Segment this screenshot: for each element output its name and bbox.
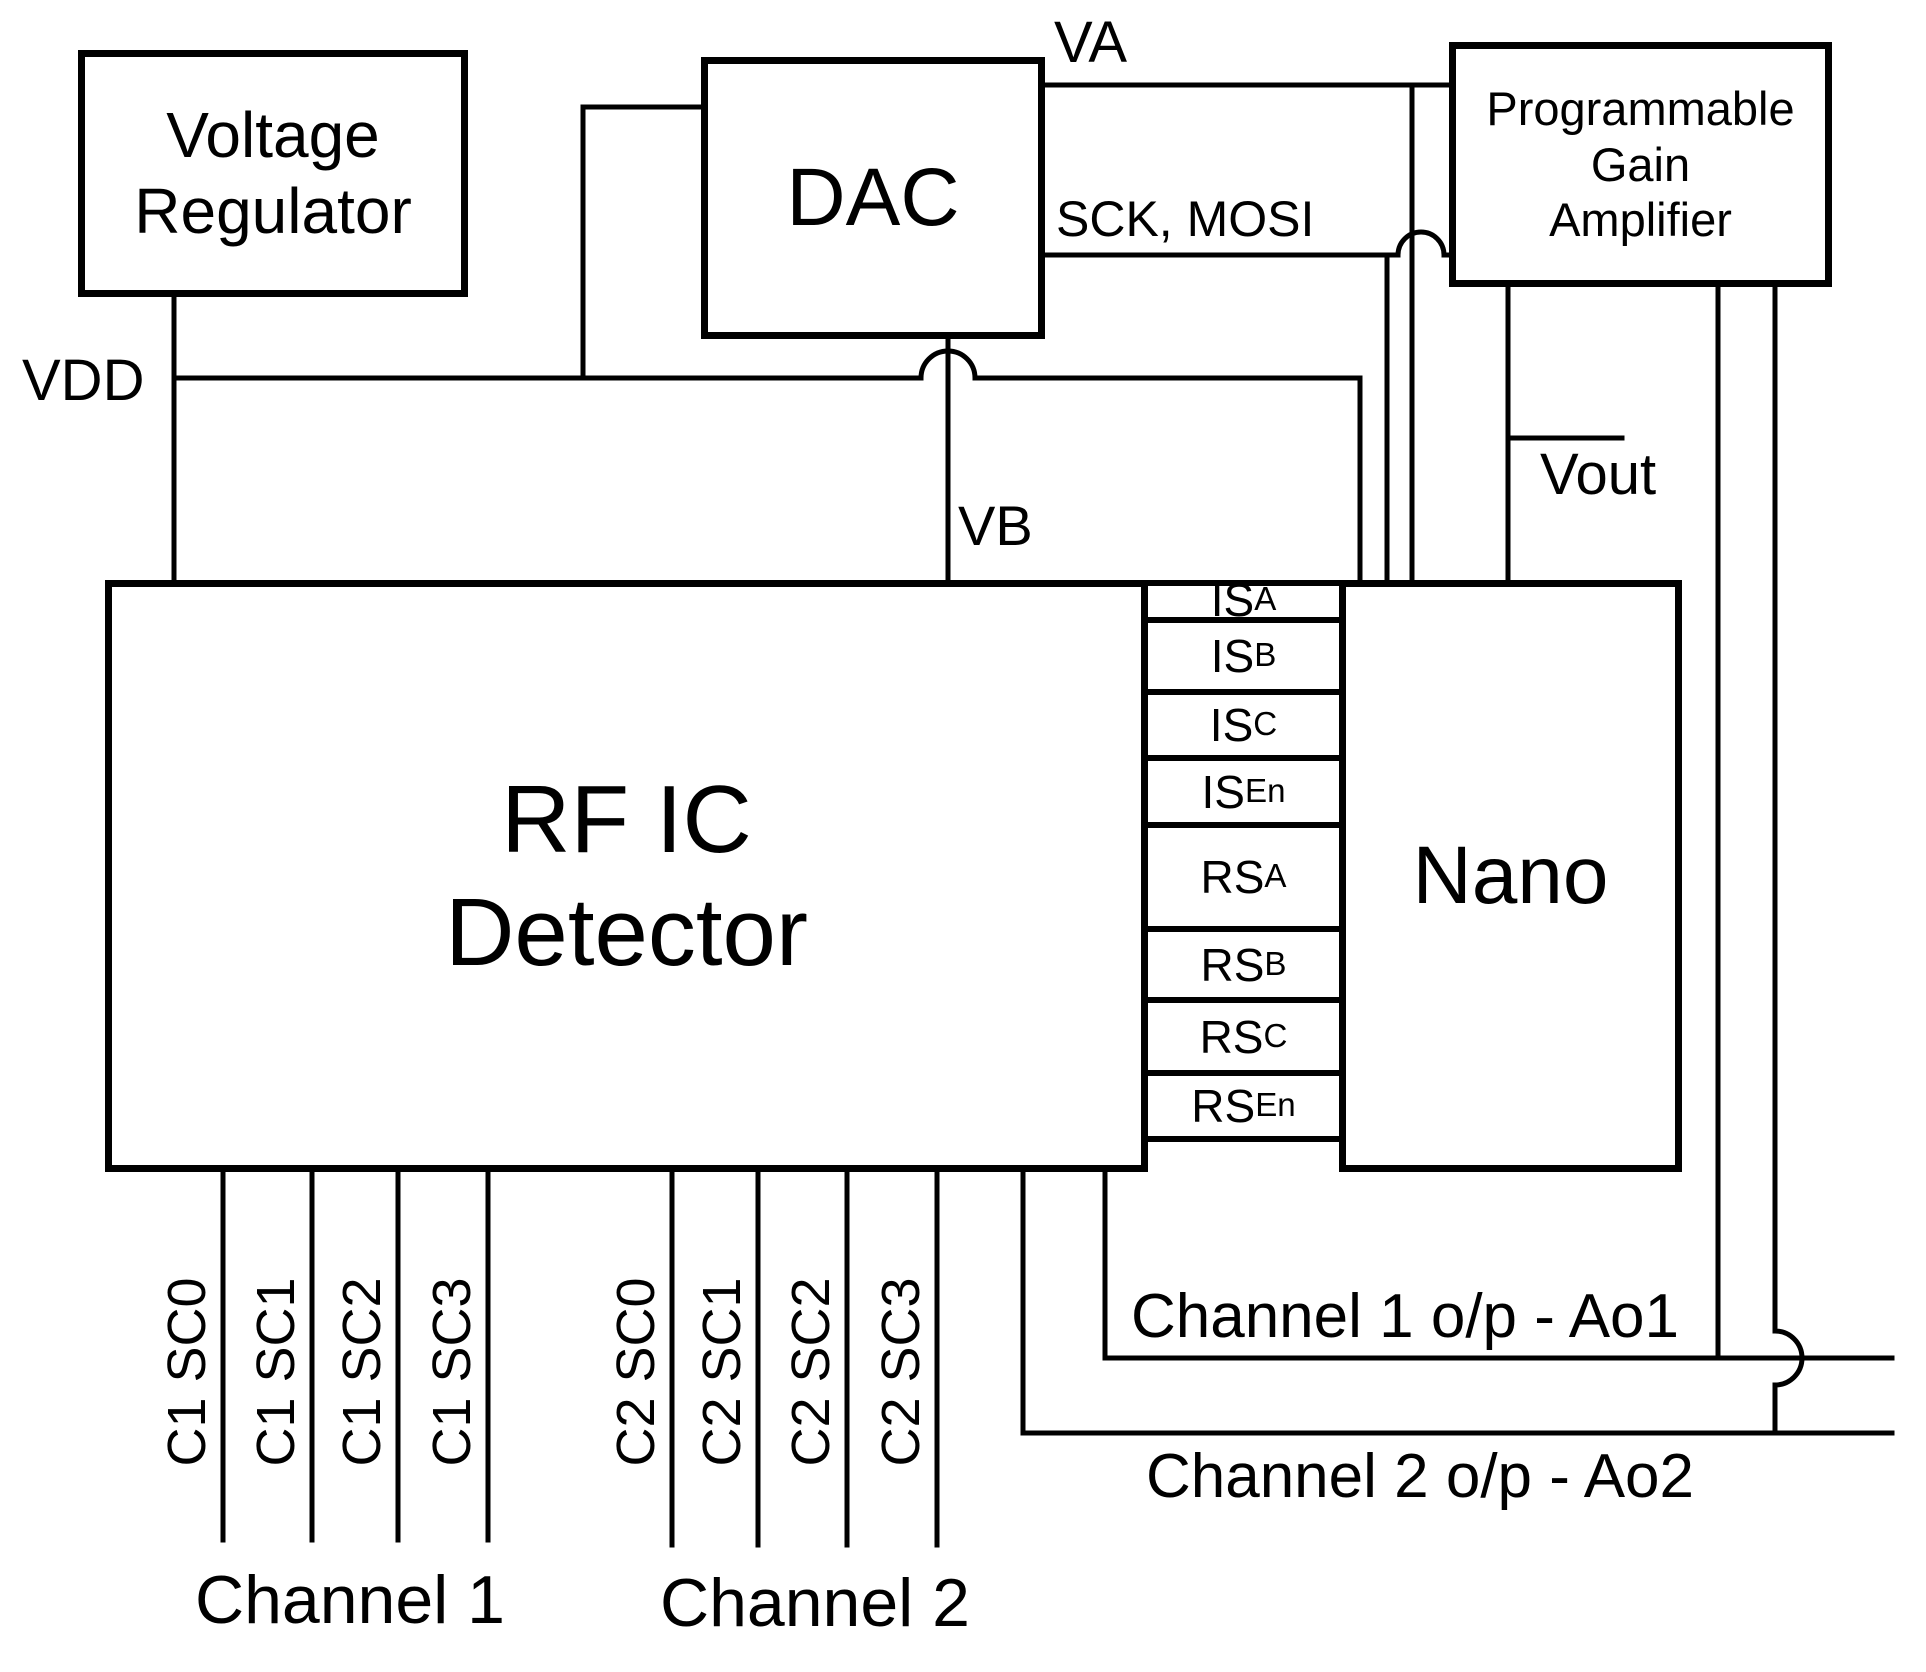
wire-vdd-rail bbox=[174, 351, 1360, 584]
bus-signal-isc-base: IS bbox=[1210, 702, 1253, 748]
bus-signal-rsen-base: RS bbox=[1191, 1083, 1255, 1129]
bus-signal-isa: ISA bbox=[1148, 580, 1339, 620]
channel2-output-label: Channel 2 o/p - Ao2 bbox=[1125, 1446, 1715, 1508]
bus-signal-rsb: RSB bbox=[1148, 929, 1339, 1000]
voltage-regulator-label-line1: Voltage bbox=[166, 98, 380, 174]
bus-signal-isb-base: IS bbox=[1211, 633, 1254, 679]
channel2-caption: Channel 2 bbox=[615, 1569, 1015, 1637]
bus-signal-rsb-base: RS bbox=[1201, 942, 1265, 988]
pga-label-line2: Gain bbox=[1591, 137, 1690, 192]
bus-signal-rsa-sub: A bbox=[1264, 860, 1286, 893]
pin-label-c2-sc0: C2 SC0 bbox=[608, 1202, 664, 1542]
bus-signal-isen-base: IS bbox=[1202, 769, 1245, 815]
bus-signal-rsen: RSEn bbox=[1148, 1073, 1339, 1139]
sck-mosi-label: SCK, MOSI bbox=[1056, 194, 1314, 244]
dac-label: DAC bbox=[786, 150, 959, 247]
bus-signal-isc: ISC bbox=[1148, 692, 1339, 758]
rfic-label-line1: RF IC bbox=[501, 763, 752, 876]
rfic-detector-block: RF IC Detector bbox=[105, 580, 1148, 1172]
bus-signal-isa-base: IS bbox=[1211, 577, 1254, 623]
dac-block: DAC bbox=[701, 57, 1045, 339]
voltage-regulator-label-line2: Regulator bbox=[134, 174, 412, 250]
vb-label: VB bbox=[958, 498, 1033, 554]
nano-label: Nano bbox=[1412, 828, 1608, 925]
pin-label-c1-sc2: C1 SC2 bbox=[334, 1202, 390, 1542]
pin-label-c2-sc1: C2 SC1 bbox=[694, 1202, 750, 1542]
block-diagram: Voltage Regulator DAC Programmable Gain … bbox=[0, 0, 1926, 1672]
bus-signal-rsen-sub: En bbox=[1255, 1089, 1296, 1122]
pin-label-c1-sc1: C1 SC1 bbox=[248, 1202, 304, 1542]
vout-label: Vout bbox=[1540, 446, 1656, 504]
pin-label-c1-sc0: C1 SC0 bbox=[159, 1202, 215, 1542]
va-label: VA bbox=[1054, 14, 1127, 72]
rfic-label-line2: Detector bbox=[445, 876, 808, 989]
bus-signal-rsc: RSC bbox=[1148, 1000, 1339, 1073]
nano-block: Nano bbox=[1339, 580, 1682, 1172]
bus-signal-rsa-base: RS bbox=[1201, 854, 1265, 900]
pin-label-c2-sc2: C2 SC2 bbox=[783, 1202, 839, 1542]
pga-label-line3: Amplifier bbox=[1549, 192, 1732, 247]
bus-signal-isen-sub: En bbox=[1245, 775, 1286, 808]
pin-label-c2-sc3: C2 SC3 bbox=[873, 1202, 929, 1542]
bus-signal-isb-sub: B bbox=[1254, 639, 1276, 672]
channel1-caption: Channel 1 bbox=[150, 1566, 550, 1634]
pin-label-c1-sc3: C1 SC3 bbox=[424, 1202, 480, 1542]
wire-dac-supply bbox=[583, 107, 705, 378]
bus-signal-rsb-sub: B bbox=[1264, 948, 1286, 981]
bus-signal-isen: ISEn bbox=[1148, 758, 1339, 825]
voltage-regulator-block: Voltage Regulator bbox=[78, 50, 468, 297]
bus-signal-rsc-sub: C bbox=[1263, 1020, 1287, 1053]
bus-signal-rsc-base: RS bbox=[1200, 1014, 1264, 1060]
bus-signal-rsa: RSA bbox=[1148, 825, 1339, 929]
channel1-output-label: Channel 1 o/p - Ao1 bbox=[1120, 1286, 1690, 1348]
pga-block: Programmable Gain Amplifier bbox=[1449, 42, 1832, 287]
bus-signal-isa-sub: A bbox=[1254, 583, 1276, 616]
wire-pga-out2 bbox=[1775, 283, 1802, 1433]
bus-signal-isc-sub: C bbox=[1253, 708, 1277, 741]
pga-label-line1: Programmable bbox=[1486, 81, 1794, 136]
bus-signal-isb: ISB bbox=[1148, 620, 1339, 692]
vdd-label: VDD bbox=[22, 352, 144, 410]
